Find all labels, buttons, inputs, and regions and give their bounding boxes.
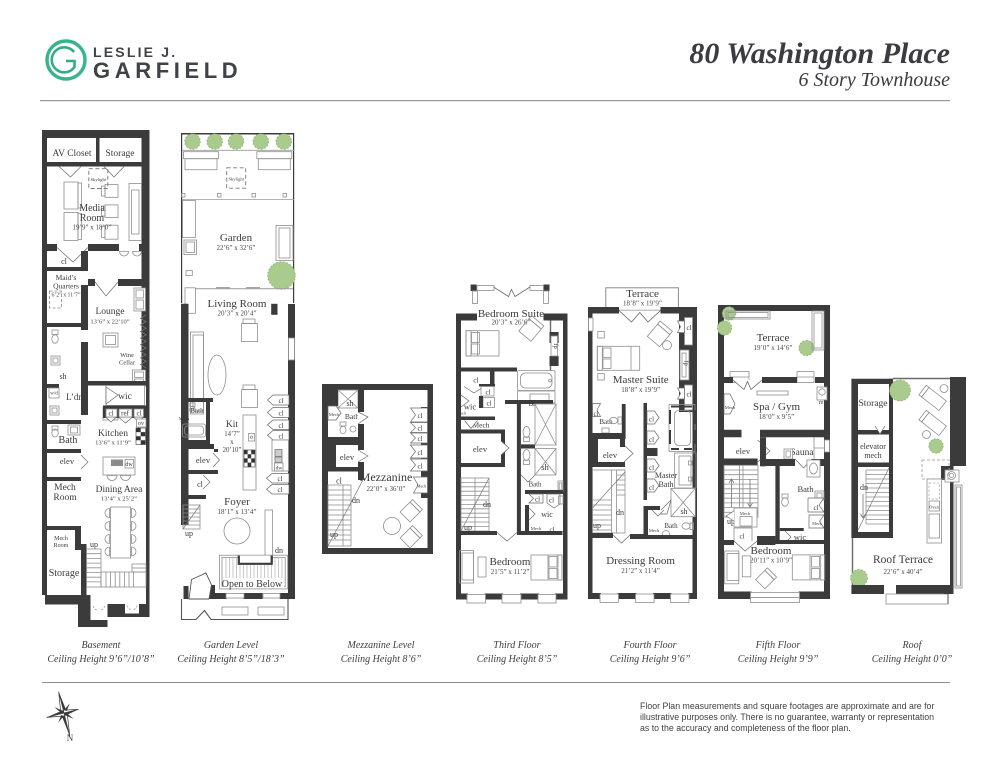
svg-text:22’0” x 36’0”: 22’0” x 36’0” [367, 485, 406, 493]
svg-text:13’6” x 22’10”: 13’6” x 22’10” [90, 319, 129, 326]
svg-text:cl: cl [278, 410, 283, 418]
svg-text:cl: cl [485, 389, 490, 397]
svg-text:Bath: Bath [599, 418, 613, 426]
svg-text:20’10”: 20’10” [223, 447, 242, 454]
svg-text:Dressing Room: Dressing Room [606, 555, 675, 567]
svg-text:dn: dn [483, 500, 491, 509]
svg-text:20’3” x 26’6”: 20’3” x 26’6” [492, 319, 531, 327]
svg-text:mech: mech [864, 451, 881, 460]
svg-text:elev: elev [60, 456, 75, 466]
svg-text:Bath: Bath [59, 435, 78, 446]
svg-text:cl: cl [686, 324, 691, 332]
svg-text:Bath: Bath [658, 480, 673, 489]
svg-text:Skylight: Skylight [228, 177, 244, 182]
svg-text:sh: sh [680, 507, 687, 516]
svg-text:Dining Area: Dining Area [96, 485, 143, 495]
svg-text:Mech: Mech [457, 411, 467, 416]
svg-text:elev: elev [603, 450, 618, 460]
svg-text:elev: elev [473, 444, 488, 454]
svg-text:18’0” x 9’5”: 18’0” x 9’5” [759, 413, 794, 421]
svg-text:Mech: Mech [531, 526, 542, 531]
svg-text:Ceiling Height 9’9”: Ceiling Height 9’9” [738, 654, 819, 665]
svg-text:Ceiling Height 9’6”: Ceiling Height 9’6” [610, 654, 691, 665]
svg-text:sh: sh [59, 372, 66, 381]
svg-text:cl: cl [336, 477, 343, 486]
svg-text:Lounge: Lounge [95, 307, 124, 317]
svg-text:elevator: elevator [860, 442, 886, 451]
svg-text:Mech: Mech [812, 521, 822, 526]
svg-text:Roof: Roof [902, 640, 923, 651]
svg-text:illustrative purposes only. Th: illustrative purposes only. There is no … [640, 712, 934, 722]
svg-text:Bedroom: Bedroom [751, 545, 792, 557]
svg-text:Mech: Mech [179, 416, 190, 421]
svg-text:19’9” x 18’0”: 19’9” x 18’0” [73, 224, 112, 232]
svg-text:Basement: Basement [82, 640, 121, 651]
svg-text:cl: cl [549, 497, 554, 505]
svg-text:Master Suite: Master Suite [613, 374, 669, 386]
svg-text:cl: cl [649, 436, 654, 444]
svg-text:Roof Terrace: Roof Terrace [873, 554, 933, 566]
svg-text:Garden: Garden [220, 232, 253, 244]
svg-text:x: x [230, 439, 234, 446]
svg-text:cl: cl [278, 432, 283, 440]
svg-text:up: up [185, 529, 193, 538]
svg-text:Wine: Wine [120, 352, 134, 359]
svg-text:as to the accuracy and complet: as to the accuracy and completeness of t… [640, 723, 851, 733]
svg-text:Quarters: Quarters [53, 282, 79, 291]
svg-text:elev: elev [736, 446, 751, 456]
svg-text:Skylight: Skylight [91, 177, 107, 182]
svg-text:cl: cl [739, 533, 744, 541]
svg-text:Living Room: Living Room [208, 298, 267, 310]
svg-text:Storage: Storage [49, 568, 80, 579]
svg-text:AV Closet: AV Closet [53, 149, 92, 159]
svg-text:13’4” x 25’2”: 13’4” x 25’2” [101, 496, 137, 503]
svg-text:14’7”: 14’7” [224, 431, 239, 438]
svg-text:cl: cl [686, 391, 691, 399]
svg-text:Room: Room [80, 213, 105, 224]
svg-text:Fifth Floor: Fifth Floor [755, 640, 801, 651]
svg-text:Mech: Mech [740, 511, 751, 516]
svg-text:22’6” x 32’6”: 22’6” x 32’6” [217, 244, 256, 252]
svg-text:13’6” x 11’9”: 13’6” x 11’9” [95, 440, 131, 447]
svg-text:18’8” x 19’9”: 18’8” x 19’9” [623, 300, 662, 308]
svg-text:Third Floor: Third Floor [493, 640, 540, 651]
svg-text:dn: dn [616, 508, 624, 517]
svg-text:Bath: Bath [664, 522, 678, 530]
svg-text:Terrace: Terrace [757, 332, 790, 344]
svg-text:cl: cl [278, 397, 283, 405]
svg-text:Bath: Bath [345, 412, 359, 421]
svg-text:cl: cl [417, 425, 422, 433]
svg-text:dw: dw [125, 462, 133, 468]
svg-text:Ceiling Height 8’6”: Ceiling Height 8’6” [341, 654, 422, 665]
svg-text:Open to Below: Open to Below [222, 579, 283, 590]
svg-text:Master: Master [655, 471, 678, 480]
svg-text:cl: cl [417, 463, 422, 471]
svg-text:18’1” x 13’4”: 18’1” x 13’4” [218, 508, 257, 516]
svg-text:sh: sh [541, 462, 549, 472]
svg-text:Bedroom: Bedroom [490, 556, 531, 568]
svg-text:wic: wic [541, 510, 553, 519]
svg-text:Mezzanine Level: Mezzanine Level [347, 640, 415, 651]
svg-text:dn: dn [275, 546, 283, 555]
svg-text:Mech: Mech [54, 536, 68, 542]
svg-text:Room: Room [53, 493, 77, 503]
svg-text:cl: cl [813, 504, 818, 512]
svg-text:Floor Plan measurements and sq: Floor Plan measurements and square foota… [640, 701, 934, 711]
svg-text:Spa / Gym: Spa / Gym [753, 401, 801, 413]
svg-text:sh: sh [346, 399, 353, 408]
svg-text:Cellar: Cellar [119, 360, 136, 367]
svg-text:dn: dn [352, 496, 360, 505]
svg-text:Garden Level: Garden Level [204, 640, 259, 651]
svg-text:20’11” x 10’9”: 20’11” x 10’9” [750, 557, 792, 565]
svg-text:Sauna: Sauna [790, 448, 814, 458]
svg-text:ov: ov [138, 420, 145, 427]
svg-text:w/d: w/d [50, 392, 58, 397]
svg-text:fp: fp [552, 343, 559, 348]
svg-text:Ceiling Height 8’5”: Ceiling Height 8’5” [477, 654, 558, 665]
svg-text:Mech: Mech [725, 405, 736, 410]
svg-text:Mech: Mech [649, 528, 660, 533]
svg-text:Kit: Kit [226, 420, 239, 430]
svg-text:80 Washington Place: 80 Washington Place [689, 37, 950, 70]
svg-text:cl: cl [278, 422, 283, 430]
svg-text:Mech: Mech [417, 484, 427, 489]
svg-text:6 Story Townhouse: 6 Story Townhouse [798, 69, 950, 91]
svg-text:Bath: Bath [529, 482, 542, 489]
svg-text:cl: cl [417, 435, 422, 443]
svg-text:Ceiling Height 0’0”: Ceiling Height 0’0” [872, 654, 953, 665]
svg-text:Mech: Mech [329, 412, 340, 417]
svg-text:fp: fp [683, 360, 690, 365]
svg-text:N: N [67, 733, 74, 743]
svg-text:19’0” x 14’6”: 19’0” x 14’6” [754, 344, 793, 352]
svg-text:cl: cl [649, 464, 654, 472]
svg-text:Fourth Floor: Fourth Floor [622, 640, 676, 651]
svg-text:up: up [464, 523, 472, 532]
svg-text:Mezzanine: Mezzanine [360, 470, 413, 484]
svg-text:wic: wic [118, 392, 132, 402]
svg-text:ref: ref [819, 399, 826, 406]
svg-text:up: up [593, 521, 601, 530]
svg-text:L’dry: L’dry [66, 392, 86, 402]
svg-text:Oven: Oven [929, 505, 939, 510]
svg-text:6’2” x 11’7”: 6’2” x 11’7” [51, 293, 81, 299]
svg-text:cl: cl [61, 257, 68, 266]
svg-text:Storage: Storage [105, 149, 134, 159]
svg-text:cl: cl [277, 475, 282, 483]
svg-text:22’6” x 40’4”: 22’6” x 40’4” [884, 568, 923, 576]
svg-text:elev: elev [340, 452, 355, 462]
svg-text:Terrace: Terrace [626, 288, 659, 300]
svg-text:GARFIELD: GARFIELD [93, 58, 242, 83]
svg-text:dn: dn [860, 483, 868, 492]
svg-text:cl: cl [649, 416, 654, 424]
svg-text:cl: cl [197, 480, 204, 489]
svg-text:up: up [330, 530, 338, 539]
svg-text:cl: cl [417, 412, 422, 420]
svg-text:cl: cl [136, 410, 141, 418]
svg-text:cl: cl [108, 410, 113, 418]
svg-text:Kitchen: Kitchen [98, 429, 128, 439]
svg-text:cl: cl [486, 400, 491, 408]
svg-text:Storage: Storage [858, 399, 887, 409]
svg-text:ref: ref [121, 410, 129, 418]
svg-text:Foyer: Foyer [224, 496, 250, 508]
svg-text:18’8” x 19’9”: 18’8” x 19’9” [621, 386, 660, 394]
svg-text:Room: Room [54, 543, 69, 549]
svg-text:21’2” x 11’4”: 21’2” x 11’4” [621, 567, 660, 575]
svg-text:cl: cl [649, 484, 654, 492]
svg-text:20’3” x 20’4”: 20’3” x 20’4” [218, 310, 257, 318]
svg-text:cl: cl [593, 410, 598, 418]
svg-text:cl: cl [417, 449, 422, 457]
svg-text:21’5” x 11’2”: 21’5” x 11’2” [491, 568, 530, 576]
svg-text:dw: dw [276, 466, 283, 472]
svg-text:up: up [90, 540, 98, 549]
svg-text:cl: cl [535, 496, 540, 504]
svg-text:cl: cl [473, 376, 478, 385]
svg-text:cl: cl [277, 486, 282, 494]
svg-text:Bath: Bath [797, 484, 814, 494]
svg-text:Ceiling Height 9’6”/10’8”: Ceiling Height 9’6”/10’8” [47, 654, 155, 665]
svg-text:Bath: Bath [190, 407, 204, 415]
svg-text:Ceiling Height 8’5”/18’3”: Ceiling Height 8’5”/18’3” [177, 654, 285, 665]
svg-text:Mech: Mech [54, 483, 76, 493]
svg-text:elev: elev [196, 455, 211, 465]
